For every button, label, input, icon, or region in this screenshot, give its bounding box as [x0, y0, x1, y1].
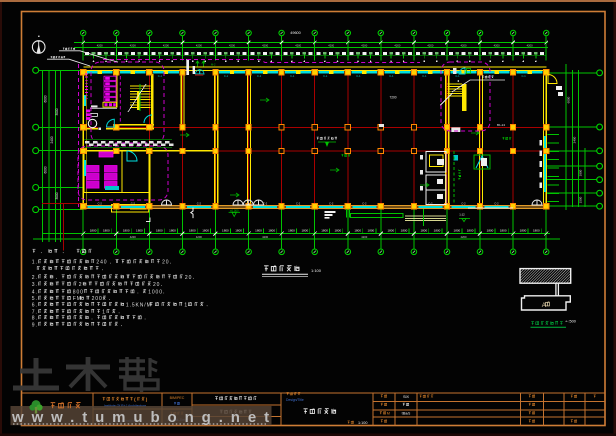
- svg-text:1800: 1800: [301, 228, 308, 232]
- svg-text:1800: 1800: [434, 228, 441, 232]
- svg-text:4200: 4200: [494, 43, 500, 47]
- svg-text:1.5KN/M: 1.5KN/M: [126, 302, 152, 308]
- svg-text:1800: 1800: [467, 228, 474, 232]
- svg-text:1: 1: [102, 310, 106, 316]
- svg-text:1800: 1800: [268, 228, 275, 232]
- svg-text:4200: 4200: [328, 43, 334, 47]
- svg-text:1800: 1800: [500, 228, 507, 232]
- svg-text:7200: 7200: [389, 96, 396, 100]
- svg-text:6.: 6.: [32, 302, 38, 308]
- svg-text:20: 20: [153, 282, 160, 288]
- svg-text:800: 800: [73, 290, 84, 296]
- svg-text:1800: 1800: [156, 228, 163, 232]
- svg-text:1800: 1800: [401, 228, 408, 232]
- svg-text:1800: 1800: [90, 228, 97, 232]
- svg-text:C-1: C-1: [290, 74, 295, 78]
- svg-text:1800: 1800: [222, 228, 229, 232]
- svg-text:4200: 4200: [196, 235, 202, 239]
- svg-text:SIX: SIX: [403, 395, 410, 399]
- svg-text:1800: 1800: [169, 228, 176, 232]
- svg-text:C-1: C-1: [224, 74, 229, 78]
- svg-text:C-1: C-1: [356, 74, 361, 78]
- svg-text:1800: 1800: [387, 228, 394, 232]
- svg-text:1.: 1.: [32, 260, 38, 266]
- svg-text:2.: 2.: [32, 275, 38, 281]
- svg-text:1800: 1800: [579, 169, 583, 176]
- svg-text:C-1: C-1: [422, 74, 427, 78]
- svg-text:8.: 8.: [32, 316, 38, 322]
- svg-text:1800: 1800: [321, 228, 328, 232]
- svg-text:1800: 1800: [136, 228, 143, 232]
- svg-text:2400: 2400: [573, 136, 577, 143]
- svg-text:Design/Title: Design/Title: [286, 398, 304, 402]
- svg-text:1000: 1000: [148, 290, 163, 296]
- svg-text:C-2: C-2: [362, 201, 367, 205]
- svg-text:4200: 4200: [361, 43, 367, 47]
- svg-text:6000: 6000: [567, 96, 571, 103]
- svg-text:C-2: C-2: [461, 201, 466, 205]
- svg-text:4200: 4200: [527, 43, 533, 47]
- svg-text:C-1: C-1: [158, 74, 163, 78]
- svg-text:C-2: C-2: [329, 201, 334, 205]
- svg-text:4200: 4200: [361, 235, 367, 239]
- svg-text:4200: 4200: [229, 43, 235, 47]
- svg-text:±0.000: ±0.000: [230, 209, 239, 213]
- svg-text:20: 20: [162, 260, 169, 266]
- svg-text:9.: 9.: [32, 322, 38, 328]
- svg-text:200: 200: [92, 296, 103, 302]
- svg-text:4200: 4200: [461, 235, 467, 239]
- svg-text:4200: 4200: [130, 43, 136, 47]
- svg-text:20: 20: [185, 275, 192, 281]
- svg-text:1: 1: [184, 302, 188, 308]
- svg-text:49600: 49600: [290, 31, 301, 35]
- svg-text:6000: 6000: [44, 95, 48, 102]
- svg-text:1800: 1800: [235, 228, 242, 232]
- svg-text:4.: 4.: [32, 290, 38, 296]
- svg-text:1800: 1800: [202, 228, 209, 232]
- svg-text:1:12: 1:12: [459, 212, 465, 216]
- svg-text:M: M: [387, 412, 390, 416]
- svg-text:1800: 1800: [189, 228, 196, 232]
- svg-text:1800: 1800: [288, 228, 295, 232]
- svg-text:1800: 1800: [103, 228, 110, 232]
- svg-text:5.: 5.: [32, 296, 38, 302]
- svg-text:1800: 1800: [334, 228, 341, 232]
- svg-text:C-1: C-1: [389, 74, 394, 78]
- svg-text:C-2: C-2: [98, 201, 103, 205]
- svg-text:4200: 4200: [163, 43, 169, 47]
- svg-text:3.: 3.: [32, 282, 38, 288]
- svg-text:1800: 1800: [533, 228, 540, 232]
- svg-text:C-1: C-1: [257, 74, 262, 78]
- svg-text:4200: 4200: [461, 43, 467, 47]
- svg-text:4200: 4200: [427, 43, 433, 47]
- svg-text:C-1: C-1: [522, 74, 527, 78]
- svg-text:www.tumubong.net: www.tumubong.net: [11, 409, 277, 426]
- svg-text:240: 240: [96, 260, 107, 266]
- svg-text:1800: 1800: [255, 228, 262, 232]
- svg-text:4200: 4200: [394, 43, 400, 47]
- svg-text:1:100: 1:100: [311, 268, 322, 273]
- svg-text:1800: 1800: [454, 228, 461, 232]
- svg-text:BIM/PEC: BIM/PEC: [170, 396, 185, 400]
- svg-text:4200: 4200: [196, 43, 202, 47]
- svg-text:C-2: C-2: [296, 201, 301, 205]
- svg-text:1500: 1500: [579, 196, 583, 203]
- svg-text:2400: 2400: [50, 136, 54, 143]
- svg-text:4200: 4200: [97, 43, 103, 47]
- svg-text:4200: 4200: [262, 43, 268, 47]
- svg-text:M-2: M-2: [211, 63, 216, 67]
- svg-text:+-:500: +-:500: [565, 320, 576, 324]
- svg-text:6000: 6000: [44, 166, 48, 173]
- svg-text:C-2: C-2: [197, 201, 202, 205]
- svg-text:1800: 1800: [420, 228, 427, 232]
- svg-text:1:100: 1:100: [358, 421, 368, 425]
- svg-text:1800: 1800: [368, 228, 375, 232]
- svg-text:4200: 4200: [130, 235, 136, 239]
- svg-text:4200: 4200: [295, 43, 301, 47]
- svg-text:tBa/s: tBa/s: [402, 412, 411, 416]
- svg-text:3000: 3000: [55, 192, 59, 199]
- svg-text:C-2: C-2: [131, 201, 136, 205]
- svg-text:1800: 1800: [520, 228, 527, 232]
- svg-text:4200: 4200: [262, 235, 268, 239]
- svg-text:C-1: C-1: [323, 74, 328, 78]
- svg-text:C-2: C-2: [494, 201, 499, 205]
- svg-text:C-1: C-1: [455, 74, 460, 78]
- svg-text:B1-24: B1-24: [497, 123, 505, 127]
- svg-text:1800: 1800: [354, 228, 361, 232]
- svg-text:1800: 1800: [123, 228, 130, 232]
- svg-text:1800: 1800: [487, 228, 494, 232]
- svg-text:3000: 3000: [55, 108, 59, 115]
- svg-text:2: 2: [79, 282, 83, 288]
- svg-text:FM: FM: [73, 296, 82, 302]
- svg-text:7.: 7.: [32, 310, 38, 316]
